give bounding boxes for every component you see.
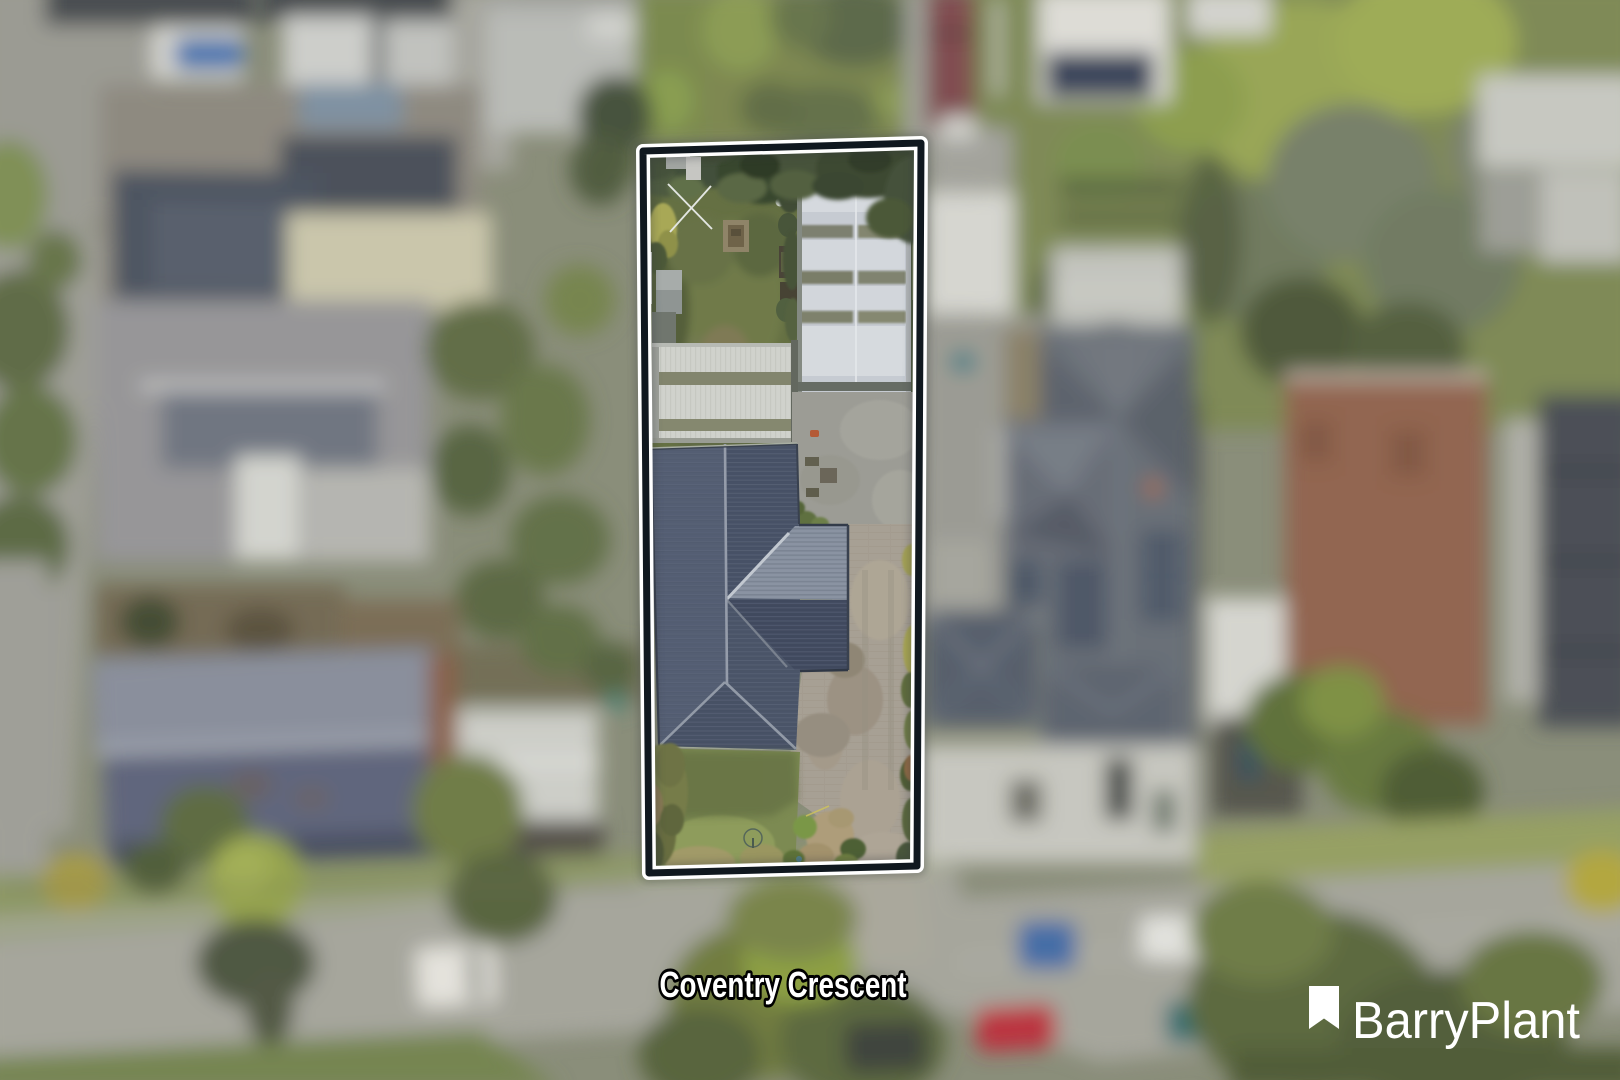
svg-text:BarryPlant: BarryPlant [1352, 992, 1581, 1050]
svg-text:Coventry Crescent: Coventry Crescent [660, 964, 907, 1005]
